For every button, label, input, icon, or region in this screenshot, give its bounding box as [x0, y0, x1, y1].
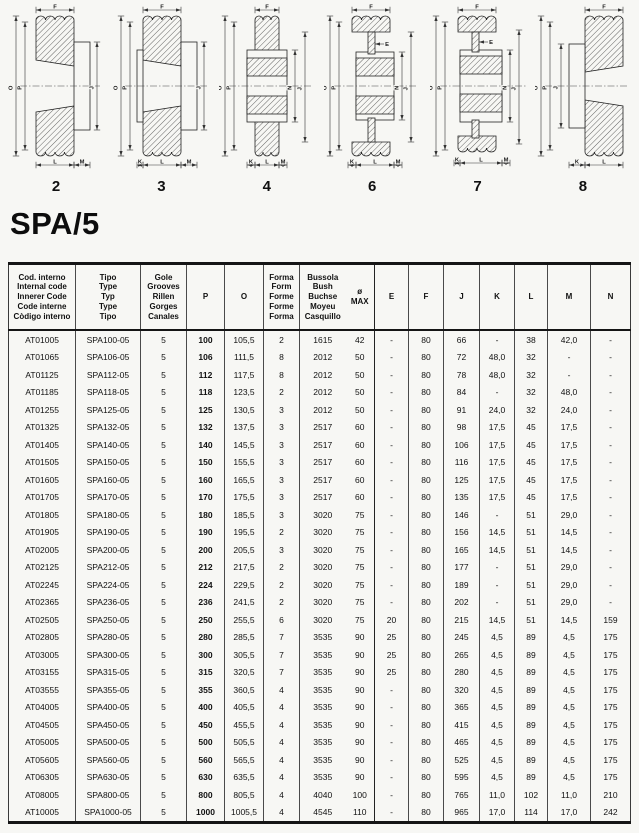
dimension-label: O [535, 85, 539, 90]
dimension-label: O [219, 85, 223, 90]
cell-omax: 90 [346, 646, 375, 664]
cell-f: 80 [409, 330, 444, 349]
cell-omax: 75 [346, 506, 375, 524]
cell-m: 4,5 [548, 681, 591, 699]
cell-form: 2 [264, 559, 300, 577]
cell-grooves: 5 [141, 769, 187, 787]
hub-section [356, 58, 394, 76]
table-row: AT01905SPA190-055190195,52302075-8015614… [9, 524, 631, 542]
dim-arrow [36, 163, 41, 166]
rim-section [352, 142, 390, 156]
cell-omax: 90 [346, 751, 375, 769]
cell-j: 91 [444, 401, 480, 419]
cell-form: 3 [264, 401, 300, 419]
table-row: AT01705SPA170-055170175,53251760-8013517… [9, 489, 631, 507]
cell-type: SPA150-05 [76, 454, 141, 472]
cell-n: - [591, 506, 631, 524]
cell-n: - [591, 489, 631, 507]
cell-m: 17,5 [548, 471, 591, 489]
cell-f: 80 [409, 454, 444, 472]
cell-grooves: 5 [141, 681, 187, 699]
dim-arrow [585, 8, 590, 11]
cell-code: AT02505 [9, 611, 76, 629]
dimension-label: M [80, 159, 85, 165]
cell-k: - [480, 330, 515, 349]
table-row: AT04505SPA450-055450455,54353590-804154,… [9, 716, 631, 734]
table-row: AT10005SPA1000-05510001005,544545110-809… [9, 804, 631, 823]
dim-arrow [329, 16, 332, 21]
cell-n: 210 [591, 786, 631, 804]
cell-f: 80 [409, 594, 444, 612]
table-row: AT02505SPA250-055250255,5630207520802151… [9, 611, 631, 629]
dim-arrow [517, 139, 520, 144]
cell-f: 80 [409, 611, 444, 629]
cell-bush: 3535 [300, 769, 346, 787]
cell-k: 4,5 [480, 751, 515, 769]
cell-f: 80 [409, 576, 444, 594]
table-row: AT01405SPA140-055140145,53251760-8010617… [9, 436, 631, 454]
cell-bush: 2517 [300, 489, 346, 507]
cell-m: 4,5 [548, 629, 591, 647]
form-number: 6 [322, 178, 422, 195]
cell-type: SPA112-05 [76, 366, 141, 384]
dimension-label: L [53, 159, 57, 165]
cell-bush: 3020 [300, 576, 346, 594]
cell-m: 29,0 [548, 559, 591, 577]
cell-j: 265 [444, 646, 480, 664]
pulley-form-4-drawing: FOPNJKLM [219, 2, 315, 174]
col-header-n: N [591, 264, 631, 331]
cell-type: SPA224-05 [76, 576, 141, 594]
cell-form: 2 [264, 524, 300, 542]
cell-omax: 110 [346, 804, 375, 823]
cell-grooves: 5 [141, 454, 187, 472]
col-header-form: Forma Form Forme Forme Forma [264, 264, 300, 331]
cell-o: 255,5 [225, 611, 264, 629]
cell-o: 241,5 [225, 594, 264, 612]
dim-arrow [274, 163, 279, 166]
cell-n: - [591, 330, 631, 349]
cell-k: 11,0 [480, 786, 515, 804]
col-header-grooves: Gole Grooves Rillen Gorges Canales [141, 264, 187, 331]
dimension-label: P [437, 86, 443, 90]
dimension-label: F [265, 4, 269, 10]
cell-bush: 4040 [300, 786, 346, 804]
cell-m: 4,5 [548, 716, 591, 734]
cell-j: 320 [444, 681, 480, 699]
cell-bush: 3535 [300, 734, 346, 752]
cell-bush: 3020 [300, 559, 346, 577]
cell-k: - [480, 576, 515, 594]
cell-bush: 2517 [300, 436, 346, 454]
cell-m: 14,5 [548, 524, 591, 542]
cell-p: 160 [187, 471, 225, 489]
dim-arrow [74, 163, 79, 166]
cell-grooves: 5 [141, 436, 187, 454]
cell-l: 45 [515, 436, 548, 454]
cell-form: 4 [264, 769, 300, 787]
dim-arrow [95, 125, 98, 130]
dim-arrow [293, 50, 296, 55]
dim-arrow [95, 42, 98, 47]
cell-p: 800 [187, 786, 225, 804]
dim-arrow [585, 163, 590, 166]
dim-arrow [255, 163, 260, 166]
cell-code: AT02125 [9, 559, 76, 577]
cell-p: 190 [187, 524, 225, 542]
cell-k: 48,0 [480, 349, 515, 367]
cell-code: AT01805 [9, 506, 76, 524]
cell-grooves: 5 [141, 330, 187, 349]
dim-arrow [293, 117, 296, 122]
cell-o: 565,5 [225, 751, 264, 769]
cell-o: 155,5 [225, 454, 264, 472]
cell-l: 51 [515, 559, 548, 577]
cell-n: 175 [591, 751, 631, 769]
cell-k: 4,5 [480, 716, 515, 734]
dim-arrow [255, 8, 260, 11]
cell-grooves: 5 [141, 419, 187, 437]
hub-section [472, 32, 479, 52]
dimension-label: N [287, 86, 293, 90]
cell-l: 89 [515, 629, 548, 647]
cell-j: 215 [444, 611, 480, 629]
cell-grooves: 5 [141, 541, 187, 559]
cell-grooves: 5 [141, 734, 187, 752]
cell-j: 156 [444, 524, 480, 542]
rim-section [458, 16, 496, 32]
cell-n: 159 [591, 611, 631, 629]
dim-arrow [401, 52, 404, 57]
dim-arrow [618, 163, 623, 166]
cell-o: 175,5 [225, 489, 264, 507]
cell-j: 465 [444, 734, 480, 752]
dim-arrow [338, 145, 341, 150]
cell-l: 51 [515, 576, 548, 594]
cell-n: 175 [591, 664, 631, 682]
cell-m: 4,5 [548, 734, 591, 752]
cell-f: 80 [409, 436, 444, 454]
cell-o: 111,5 [225, 349, 264, 367]
cell-omax: 50 [346, 366, 375, 384]
dim-arrow [303, 137, 306, 142]
dimension-label: N [395, 86, 401, 90]
cell-j: 245 [444, 629, 480, 647]
cell-k: 24,0 [480, 401, 515, 419]
cell-type: SPA160-05 [76, 471, 141, 489]
cell-f: 80 [409, 786, 444, 804]
cell-k: 4,5 [480, 664, 515, 682]
cell-k: 4,5 [480, 769, 515, 787]
dim-arrow [569, 163, 574, 166]
dimension-label: J [297, 87, 303, 90]
dim-arrow [176, 163, 181, 166]
cell-e: - [375, 804, 409, 823]
cell-k: 17,5 [480, 436, 515, 454]
cell-omax: 90 [346, 681, 375, 699]
cell-k: - [480, 506, 515, 524]
cell-bush: 2012 [300, 384, 346, 402]
cell-code: AT01005 [9, 330, 76, 349]
cell-grooves: 5 [141, 471, 187, 489]
cell-j: 525 [444, 751, 480, 769]
cell-bush: 2012 [300, 349, 346, 367]
dim-arrow [580, 163, 585, 166]
cell-form: 2 [264, 594, 300, 612]
dim-arrow [203, 42, 206, 47]
cell-code: AT01255 [9, 401, 76, 419]
cell-code: AT04505 [9, 716, 76, 734]
cell-o: 217,5 [225, 559, 264, 577]
cell-k: 17,0 [480, 804, 515, 823]
col-header-f: F [409, 264, 444, 331]
hub-section [460, 94, 502, 112]
table-row: AT01325SPA132-055132137,53251760-809817,… [9, 419, 631, 437]
cell-code: AT01705 [9, 489, 76, 507]
cell-omax: 75 [346, 611, 375, 629]
cell-k: 17,5 [480, 489, 515, 507]
cell-type: SPA200-05 [76, 541, 141, 559]
cell-omax: 60 [346, 471, 375, 489]
cell-type: SPA180-05 [76, 506, 141, 524]
cell-l: 89 [515, 646, 548, 664]
col-header-j: J [444, 264, 480, 331]
cell-j: 84 [444, 384, 480, 402]
dim-arrow [458, 8, 463, 11]
cell-f: 80 [409, 681, 444, 699]
cell-m: 4,5 [548, 769, 591, 787]
cell-e: - [375, 576, 409, 594]
cell-o: 305,5 [225, 646, 264, 664]
cell-n: 175 [591, 629, 631, 647]
cell-l: 32 [515, 401, 548, 419]
cell-type: SPA400-05 [76, 699, 141, 717]
cell-grooves: 5 [141, 804, 187, 823]
dimension-label: P [332, 86, 338, 90]
pulley-form-8: FOPJKL 8 [533, 2, 633, 195]
cell-code: AT03155 [9, 664, 76, 682]
col-header-l: L [515, 264, 548, 331]
cell-j: 72 [444, 349, 480, 367]
cell-n: - [591, 384, 631, 402]
cell-form: 4 [264, 804, 300, 823]
form-number: 2 [6, 178, 106, 195]
dim-arrow [539, 16, 542, 21]
cell-grooves: 5 [141, 349, 187, 367]
pulley-form-2-drawing: FOPJLM [8, 2, 104, 174]
cell-f: 80 [409, 384, 444, 402]
cell-type: SPA315-05 [76, 664, 141, 682]
cell-f: 80 [409, 559, 444, 577]
table-body: AT01005SPA100-055100105,52161542-8066-38… [9, 330, 631, 823]
cell-code: AT06305 [9, 769, 76, 787]
cell-bush: 3020 [300, 594, 346, 612]
cell-f: 80 [409, 716, 444, 734]
table-row: AT01605SPA160-055160165,53251760-8012517… [9, 471, 631, 489]
cell-omax: 50 [346, 349, 375, 367]
cell-p: 100 [187, 330, 225, 349]
cell-l: 89 [515, 751, 548, 769]
cell-n: - [591, 541, 631, 559]
cell-e: - [375, 699, 409, 717]
cell-grooves: 5 [141, 366, 187, 384]
cell-code: AT08005 [9, 786, 76, 804]
cell-p: 125 [187, 401, 225, 419]
cell-type: SPA236-05 [76, 594, 141, 612]
cell-form: 2 [264, 384, 300, 402]
cell-bush: 3535 [300, 664, 346, 682]
dim-arrow [14, 16, 17, 21]
dim-arrow [192, 163, 197, 166]
dim-arrow [548, 22, 551, 27]
cell-code: AT01905 [9, 524, 76, 542]
table-row: AT06305SPA630-055630635,54353590-805954,… [9, 769, 631, 787]
cell-code: AT02005 [9, 541, 76, 559]
cell-l: 51 [515, 524, 548, 542]
table-row: AT05005SPA500-055500505,54353590-804654,… [9, 734, 631, 752]
cell-bush: 3535 [300, 751, 346, 769]
hub-section [460, 56, 502, 74]
pulley-form-7: FEOPNJKLM 7 [428, 2, 528, 195]
cell-grooves: 5 [141, 786, 187, 804]
cell-p: 500 [187, 734, 225, 752]
dim-arrow [548, 145, 551, 150]
cell-bush: 3535 [300, 646, 346, 664]
cell-f: 80 [409, 471, 444, 489]
rim-section [36, 16, 74, 66]
dim-arrow [389, 163, 394, 166]
dimension-label: P [123, 86, 129, 90]
cell-n: 175 [591, 769, 631, 787]
cell-p: 250 [187, 611, 225, 629]
cell-f: 80 [409, 419, 444, 437]
cell-m: 17,5 [548, 419, 591, 437]
cell-m: 17,5 [548, 489, 591, 507]
cell-e: 20 [375, 611, 409, 629]
cell-omax: 75 [346, 576, 375, 594]
cell-p: 630 [187, 769, 225, 787]
pulley-form-3: FOPJKLM 3 [111, 2, 211, 195]
cell-l: 38 [515, 330, 548, 349]
cell-omax: 50 [346, 401, 375, 419]
cell-form: 3 [264, 419, 300, 437]
cell-m: 4,5 [548, 646, 591, 664]
dim-arrow [36, 8, 41, 11]
cell-e: - [375, 769, 409, 787]
cell-p: 170 [187, 489, 225, 507]
cell-o: 285,5 [225, 629, 264, 647]
rim-section [143, 106, 181, 156]
cell-form: 7 [264, 646, 300, 664]
cell-code: AT04005 [9, 699, 76, 717]
cell-m: 29,0 [548, 594, 591, 612]
cell-k: 4,5 [480, 681, 515, 699]
table-row: AT02245SPA224-055224229,52302075-80189-5… [9, 576, 631, 594]
cell-code: AT03555 [9, 681, 76, 699]
cell-type: SPA450-05 [76, 716, 141, 734]
cell-j: 146 [444, 506, 480, 524]
cell-o: 145,5 [225, 436, 264, 454]
cell-e: - [375, 786, 409, 804]
form-number: 7 [428, 178, 528, 195]
cell-form: 6 [264, 611, 300, 629]
cell-bush: 2012 [300, 401, 346, 419]
cell-k: 4,5 [480, 629, 515, 647]
cell-type: SPA100-05 [76, 330, 141, 349]
dimension-label: F [53, 4, 57, 10]
cell-type: SPA560-05 [76, 751, 141, 769]
cell-l: 89 [515, 664, 548, 682]
cell-e: - [375, 524, 409, 542]
cell-type: SPA300-05 [76, 646, 141, 664]
cell-m: 17,0 [548, 804, 591, 823]
cell-m: 29,0 [548, 576, 591, 594]
dim-arrow [375, 42, 380, 45]
cell-f: 80 [409, 804, 444, 823]
cell-e: - [375, 454, 409, 472]
dim-arrow [274, 8, 279, 11]
pulley-form-4: FOPNJKLM 4 [217, 2, 317, 195]
cell-m: 11,0 [548, 786, 591, 804]
cell-form: 4 [264, 716, 300, 734]
cell-code: AT02365 [9, 594, 76, 612]
cell-p: 118 [187, 384, 225, 402]
cell-omax: 42 [346, 330, 375, 349]
hub-section [368, 32, 375, 54]
cell-form: 2 [264, 330, 300, 349]
hub-section [356, 96, 394, 114]
cell-j: 202 [444, 594, 480, 612]
dimension-label: O [8, 85, 14, 90]
dim-arrow [129, 145, 132, 150]
dim-arrow [559, 123, 562, 128]
cell-grooves: 5 [141, 629, 187, 647]
cell-form: 3 [264, 541, 300, 559]
table-row: AT02005SPA200-055200205,53302075-8016514… [9, 541, 631, 559]
cell-f: 80 [409, 506, 444, 524]
cell-l: 45 [515, 454, 548, 472]
cell-p: 236 [187, 594, 225, 612]
cell-code: AT01125 [9, 366, 76, 384]
cell-e: 25 [375, 629, 409, 647]
pulley-form-8-drawing: FOPJKL [535, 2, 631, 174]
cell-o: 455,5 [225, 716, 264, 734]
cell-e: - [375, 384, 409, 402]
cell-e: - [375, 401, 409, 419]
cell-omax: 50 [346, 384, 375, 402]
cell-m: 4,5 [548, 664, 591, 682]
cell-j: 165 [444, 541, 480, 559]
cell-l: 32 [515, 349, 548, 367]
cell-e: - [375, 349, 409, 367]
cell-j: 106 [444, 436, 480, 454]
cell-f: 80 [409, 734, 444, 752]
cell-type: SPA500-05 [76, 734, 141, 752]
dimension-label: O [430, 85, 434, 90]
rim-section [255, 16, 279, 54]
cell-p: 450 [187, 716, 225, 734]
table-row: AT05605SPA560-055560565,54353590-805254,… [9, 751, 631, 769]
cell-p: 200 [187, 541, 225, 559]
dim-arrow [410, 32, 413, 37]
cell-j: 189 [444, 576, 480, 594]
cell-o: 195,5 [225, 524, 264, 542]
cell-form: 4 [264, 786, 300, 804]
cell-form: 7 [264, 664, 300, 682]
pulley-form-2: FOPJLM 2 [6, 2, 106, 195]
cell-n: - [591, 454, 631, 472]
cell-o: 635,5 [225, 769, 264, 787]
